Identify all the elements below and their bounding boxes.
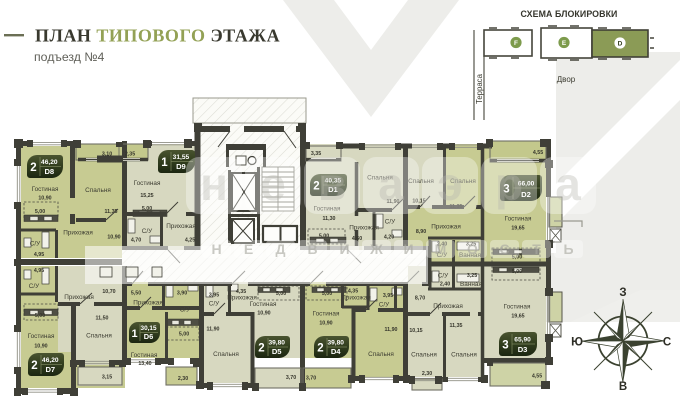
svg-text:4,55: 4,55	[533, 150, 543, 156]
svg-text:Прихожая: Прихожая	[166, 223, 196, 230]
svg-text:Е: Е	[244, 241, 253, 257]
svg-text:Спальня: Спальня	[86, 333, 112, 340]
svg-text:Двор: Двор	[557, 75, 576, 84]
svg-text:В: В	[619, 381, 627, 393]
svg-text:3: 3	[502, 340, 508, 352]
svg-text:F: F	[514, 40, 518, 47]
svg-text:2,30: 2,30	[422, 371, 432, 377]
svg-text:Гостиная: Гостиная	[250, 301, 277, 308]
svg-text:С/У: С/У	[438, 273, 449, 280]
svg-text:5,00: 5,00	[142, 206, 152, 212]
svg-text:65,90: 65,90	[514, 337, 531, 344]
svg-text:46,20: 46,20	[42, 357, 59, 364]
svg-text:11,30: 11,30	[323, 216, 336, 222]
svg-text:2: 2	[317, 343, 323, 355]
svg-text:D5: D5	[272, 347, 282, 356]
svg-text:М: М	[435, 241, 447, 257]
svg-text:D7: D7	[45, 365, 55, 374]
svg-text:С/У: С/У	[385, 219, 396, 226]
svg-text:3,95: 3,95	[209, 293, 219, 299]
svg-text:4,25: 4,25	[185, 238, 195, 244]
svg-text:5,00: 5,00	[276, 291, 286, 297]
svg-text:10,90: 10,90	[257, 311, 270, 317]
svg-text:Спальня: Спальня	[213, 351, 239, 358]
svg-text:10,70: 10,70	[102, 289, 115, 295]
svg-text:E: E	[562, 40, 567, 47]
svg-text:10,15: 10,15	[409, 328, 422, 334]
svg-text:Спальня: Спальня	[368, 351, 394, 358]
svg-text:2: 2	[30, 162, 36, 174]
svg-text:Гостиная: Гостиная	[28, 333, 55, 340]
svg-text:Прихожая: Прихожая	[64, 294, 94, 301]
svg-text:подъезд №4: подъезд №4	[34, 50, 105, 64]
svg-text:11,90: 11,90	[385, 327, 398, 333]
svg-text:11,35: 11,35	[450, 323, 463, 329]
svg-text:Прихожая: Прихожая	[341, 295, 371, 302]
svg-text:2,40: 2,40	[440, 282, 450, 288]
svg-text:2: 2	[31, 360, 37, 372]
svg-text:30,15: 30,15	[141, 325, 157, 332]
svg-text:Прихожая: Прихожая	[431, 224, 461, 231]
svg-text:Т: Т	[532, 241, 541, 257]
svg-text:D9: D9	[176, 162, 186, 171]
svg-text:5,00: 5,00	[512, 269, 522, 275]
svg-text:Прихожая: Прихожая	[133, 300, 163, 307]
svg-text:2,35: 2,35	[125, 152, 135, 158]
svg-text:2,30: 2,30	[178, 376, 188, 382]
svg-text:D6: D6	[144, 332, 153, 341]
svg-text:Ванная: Ванная	[460, 281, 482, 288]
svg-text:D3: D3	[518, 345, 528, 354]
svg-text:11,35: 11,35	[105, 209, 118, 215]
svg-text:4,95: 4,95	[34, 252, 44, 258]
svg-text:3,70: 3,70	[306, 376, 316, 382]
svg-text:СХЕМА БЛОКИРОВКИ: СХЕМА БЛОКИРОВКИ	[521, 9, 618, 19]
svg-text:5,00: 5,00	[322, 291, 332, 297]
svg-text:19,65: 19,65	[511, 226, 524, 232]
svg-text:С/У: С/У	[29, 283, 40, 290]
svg-text:8,70: 8,70	[415, 296, 425, 302]
svg-text:С/У: С/У	[180, 307, 191, 314]
svg-text:10,90: 10,90	[34, 344, 47, 350]
svg-text:ПЛАН ТИПОВОГО ЭТАЖА: ПЛАН ТИПОВОГО ЭТАЖА	[35, 26, 280, 46]
svg-text:4,70: 4,70	[131, 238, 141, 244]
svg-text:2: 2	[258, 343, 264, 355]
svg-text:И: И	[403, 241, 413, 257]
svg-text:Н: Н	[211, 241, 221, 257]
svg-text:3,90: 3,90	[177, 291, 187, 297]
svg-text:Гостиная: Гостиная	[504, 304, 531, 311]
svg-text:Спальня: Спальня	[451, 352, 477, 359]
svg-text:5,00: 5,00	[35, 209, 45, 215]
svg-text:С: С	[499, 241, 509, 257]
svg-text:39,80: 39,80	[327, 340, 344, 347]
svg-text:D8: D8	[44, 167, 54, 176]
svg-text:3,35: 3,35	[311, 151, 321, 157]
svg-text:Ю: Ю	[571, 337, 583, 349]
svg-text:5,00: 5,00	[319, 234, 329, 240]
svg-text:Ь: Ь	[563, 241, 573, 257]
svg-text:Ж: Ж	[369, 241, 383, 257]
svg-text:19,65: 19,65	[511, 314, 524, 320]
svg-text:В: В	[307, 241, 317, 257]
svg-text:11,50: 11,50	[96, 316, 109, 322]
svg-text:11,90: 11,90	[207, 327, 220, 333]
svg-text:10,90: 10,90	[107, 235, 120, 241]
svg-text:З: З	[619, 287, 626, 299]
svg-text:О: О	[467, 241, 478, 257]
svg-text:3,25: 3,25	[467, 273, 477, 279]
svg-text:Гостиная: Гостиная	[131, 352, 158, 359]
svg-text:а: а	[555, 158, 581, 210]
svg-text:С: С	[663, 337, 671, 349]
svg-text:D4: D4	[331, 347, 341, 356]
svg-text:э: э	[437, 158, 462, 210]
svg-text:3,95: 3,95	[383, 293, 393, 299]
svg-text:е: е	[260, 158, 286, 210]
svg-text:С/У: С/У	[379, 302, 390, 309]
svg-text:46,20: 46,20	[41, 159, 58, 166]
svg-text:1: 1	[161, 157, 168, 169]
svg-text:10,90: 10,90	[319, 321, 332, 327]
svg-text:Прихожая: Прихожая	[433, 303, 463, 310]
svg-text:Спальня: Спальня	[85, 187, 111, 194]
svg-text:Д: Д	[276, 241, 286, 257]
svg-text:С/У: С/У	[142, 228, 153, 235]
svg-text:39,80: 39,80	[268, 340, 285, 347]
svg-text:4,20: 4,20	[384, 235, 394, 241]
svg-text:Гостиная: Гостиная	[32, 186, 59, 193]
svg-text:1: 1	[131, 328, 137, 340]
svg-text:И: И	[339, 241, 349, 257]
svg-text:15,25: 15,25	[140, 193, 153, 199]
svg-text:5,00: 5,00	[35, 313, 45, 319]
svg-text:Прихожая: Прихожая	[349, 225, 379, 232]
svg-text:Гостиная: Гостиная	[134, 180, 161, 187]
svg-text:р: р	[495, 158, 523, 210]
svg-text:Гостиная: Гостиная	[313, 311, 340, 318]
svg-text:5,00: 5,00	[179, 332, 189, 338]
svg-text:31,55: 31,55	[173, 154, 190, 161]
svg-text:4,95: 4,95	[34, 268, 44, 274]
svg-text:н: н	[200, 158, 228, 210]
svg-text:3,10: 3,10	[102, 152, 112, 158]
svg-text:10,90: 10,90	[38, 196, 51, 202]
svg-text:5,50: 5,50	[131, 291, 141, 297]
svg-text:С/У: С/У	[209, 301, 220, 308]
svg-text:а: а	[378, 158, 404, 210]
svg-text:С/У: С/У	[30, 241, 41, 248]
svg-text:3,15: 3,15	[102, 375, 112, 381]
svg-text:Гостиная: Гостиная	[505, 216, 532, 223]
svg-text:Прихожая: Прихожая	[227, 295, 257, 302]
svg-text:4,55: 4,55	[532, 374, 542, 380]
svg-text:Прихожая: Прихожая	[63, 230, 93, 237]
svg-text:D: D	[618, 41, 623, 48]
svg-text:в: в	[318, 158, 346, 210]
svg-text:8,90: 8,90	[416, 229, 426, 235]
svg-text:3,70: 3,70	[286, 375, 296, 381]
svg-text:Терраса: Терраса	[475, 73, 484, 104]
svg-text:13,40: 13,40	[138, 361, 151, 367]
svg-text:Спальня: Спальня	[411, 352, 437, 359]
